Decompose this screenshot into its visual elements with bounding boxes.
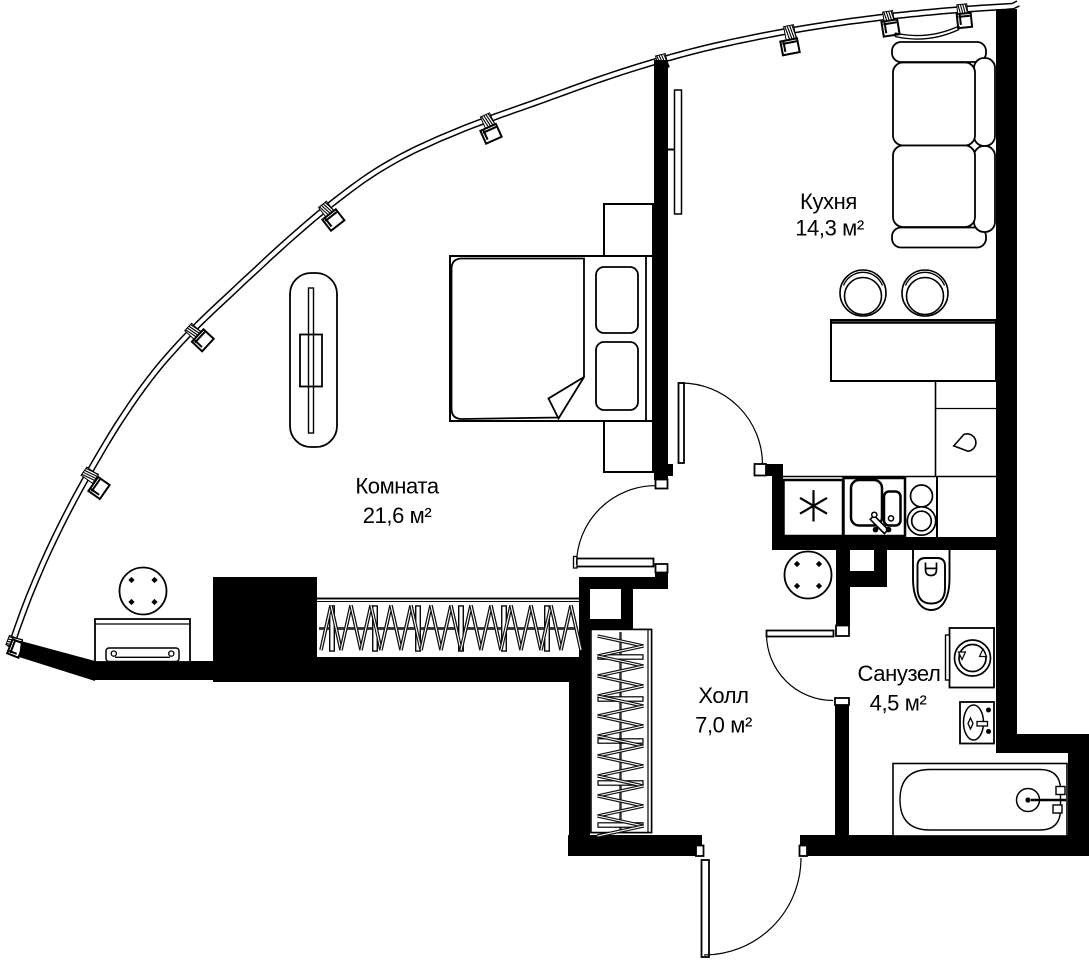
svg-text:7,0 м²: 7,0 м²	[695, 713, 752, 738]
svg-text:21,6 м²: 21,6 м²	[363, 503, 432, 528]
svg-text:Кухня: Кухня	[800, 189, 857, 214]
svg-text:Комната: Комната	[355, 474, 440, 499]
svg-text:14,3 м²: 14,3 м²	[795, 216, 864, 241]
svg-text:Санузел: Санузел	[858, 661, 941, 686]
svg-text:Холл: Холл	[698, 683, 748, 708]
svg-text:4,5 м²: 4,5 м²	[870, 691, 927, 716]
